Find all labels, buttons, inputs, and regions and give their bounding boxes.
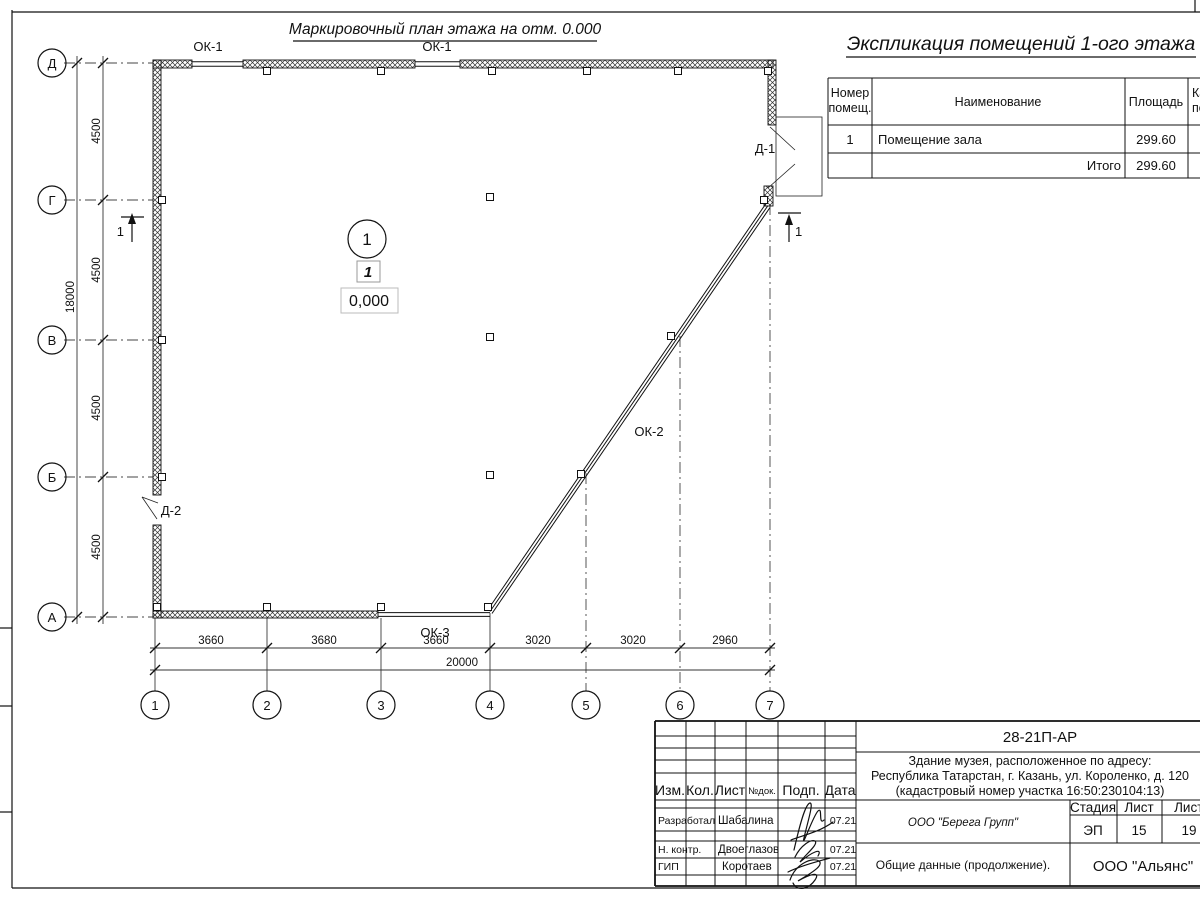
tb-doc-title: Общие данные (продолжение). [876,858,1050,872]
door-d1-leaves [768,127,795,188]
svg-text:А: А [48,610,57,625]
tb-col-data: Дата [824,782,855,798]
explication-col-cut-1: Ка [1192,86,1200,100]
tb-sheets-value: 19 [1181,823,1196,838]
explication-col-number-1: Номер [831,86,870,100]
door-d2-leaf [142,497,157,519]
explication-col-cut-2: по [1192,101,1200,115]
svg-text:Д: Д [48,56,57,71]
svg-text:3660: 3660 [198,635,224,647]
signature-1 [791,803,833,850]
window-ok2-diagonal [488,204,770,614]
section-label-right: 1 [795,224,802,239]
left-dimension-labels: 4500 4500 4500 4500 18000 [65,118,103,560]
bottom-dimension-labels: 3660 3680 3660 3020 3020 2960 20000 [198,635,738,669]
drawing-sheet: Маркировочный план этажа на отм. 0.000 4… [0,0,1200,900]
svg-text:5: 5 [582,698,589,713]
explication-total-label: Итого [1087,158,1121,173]
tb-col-podp: Подп. [782,782,819,798]
svg-text:2: 2 [263,698,270,713]
explication-col-area: Площадь [1129,95,1183,109]
label-ok1-left: ОК-1 [193,39,222,54]
label-d1: Д-1 [755,141,775,156]
room-elevation: 0,000 [349,293,389,310]
svg-text:3680: 3680 [311,635,337,647]
window-ok1-right [415,62,460,66]
tb-sheet-value: 15 [1131,823,1146,838]
column-axis-bubbles: 1 2 3 4 5 6 7 [141,691,784,719]
tb-address-1: Здание музея, расположенное по адресу: [908,754,1151,768]
svg-text:4500: 4500 [91,534,103,560]
tb-row1-name: Шабалина [718,815,774,827]
section-mark-left: 1 [117,213,144,242]
tb-col-list: Лист [715,782,746,798]
section-label-left: 1 [117,224,124,239]
tb-row1-date: 07.21 [830,815,856,827]
svg-text:4500: 4500 [91,395,103,421]
svg-text:3020: 3020 [525,635,551,647]
explication-col-name: Наименование [955,95,1042,109]
window-ok3 [378,613,490,617]
svg-text:1: 1 [151,698,158,713]
svg-text:4500: 4500 [91,118,103,144]
svg-text:6: 6 [676,698,683,713]
room-number: 1 [362,230,371,249]
explication-table: Номер помещ. Наименование Площадь Ка по … [828,78,1200,178]
walls [153,60,776,618]
tb-sheets-label: Листов [1174,800,1200,815]
row-axis-bubbles: Д Г В Б А [38,49,66,631]
explication-total-area: 299.60 [1136,158,1176,173]
tb-address-2: Республика Татарстан, г. Казань, ул. Кор… [871,769,1189,783]
tb-col-izm: Изм. [655,782,685,798]
svg-text:3020: 3020 [620,635,646,647]
porch-outline [776,117,822,196]
tb-row2-role: Н. контр. [658,844,701,856]
column-markers [154,68,772,611]
explication-row-number: 1 [846,132,853,147]
tb-address-3: (кадастровый номер участка 16:50:230104:… [896,784,1165,798]
svg-text:20000: 20000 [446,657,478,669]
tb-stage-value: ЭП [1083,823,1102,838]
element-labels: ОК-1 ОК-1 ОК-2 ОК-3 Д-1 Д-2 [161,39,775,640]
explication-title: Экспликация помещений 1-ого этажа [847,33,1196,55]
explication-col-number-2: помещ. [828,101,871,115]
explication-row-name: Помещение зала [878,132,983,147]
svg-text:3: 3 [377,698,384,713]
label-d2: Д-2 [161,503,181,518]
tb-row3-name: Коротаев [722,861,772,873]
tb-row3-date: 07.21 [830,861,856,873]
tb-row3-role: ГИП [658,861,679,873]
svg-text:4: 4 [486,698,493,713]
svg-text:Б: Б [48,470,57,485]
tb-sheet-label: Лист [1124,800,1153,815]
svg-text:18000: 18000 [65,281,77,313]
title-block: Изм. Кол. Лист №док. Подп. Дата Разработ… [655,721,1200,888]
room-mark: 1 [364,264,372,281]
tb-company: ООО "Берега Групп" [908,817,1019,829]
tb-col-doc: №док. [748,786,776,797]
svg-text:2960: 2960 [712,635,738,647]
plan-title: Маркировочный план этажа на отм. 0.000 [289,21,602,38]
tb-contractor: ООО "Альянс" [1093,858,1193,875]
tb-col-kol: Кол. [686,782,714,798]
label-ok3: ОК-3 [420,625,449,640]
window-ok1-left [192,62,243,66]
svg-text:В: В [48,333,57,348]
floor-plan-drawing: Маркировочный план этажа на отм. 0.000 4… [0,0,1200,900]
tb-stage-label: Стадия [1070,800,1116,815]
tb-row2-name: Двоеглазов [718,844,779,856]
section-mark-right: 1 [778,213,802,242]
svg-text:7: 7 [766,698,773,713]
label-ok1-right: ОК-1 [422,39,451,54]
svg-text:Г: Г [48,193,55,208]
svg-text:4500: 4500 [91,257,103,283]
room-marker: 1 1 0,000 [341,220,398,313]
label-ok2: ОК-2 [634,424,663,439]
tb-row1-role: Разработал [658,815,715,827]
explication-row-area: 299.60 [1136,132,1176,147]
tb-doc-number: 28-21П-АР [1003,729,1077,746]
tb-row2-date: 07.21 [830,844,856,856]
